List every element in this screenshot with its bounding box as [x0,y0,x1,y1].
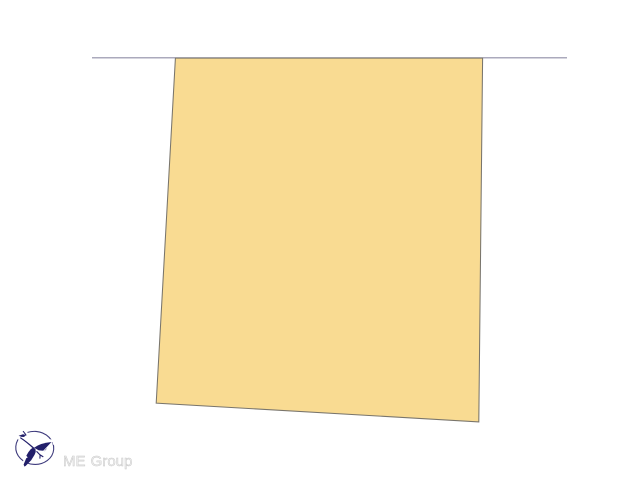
svg-text:ME Group: ME Group [63,453,132,470]
